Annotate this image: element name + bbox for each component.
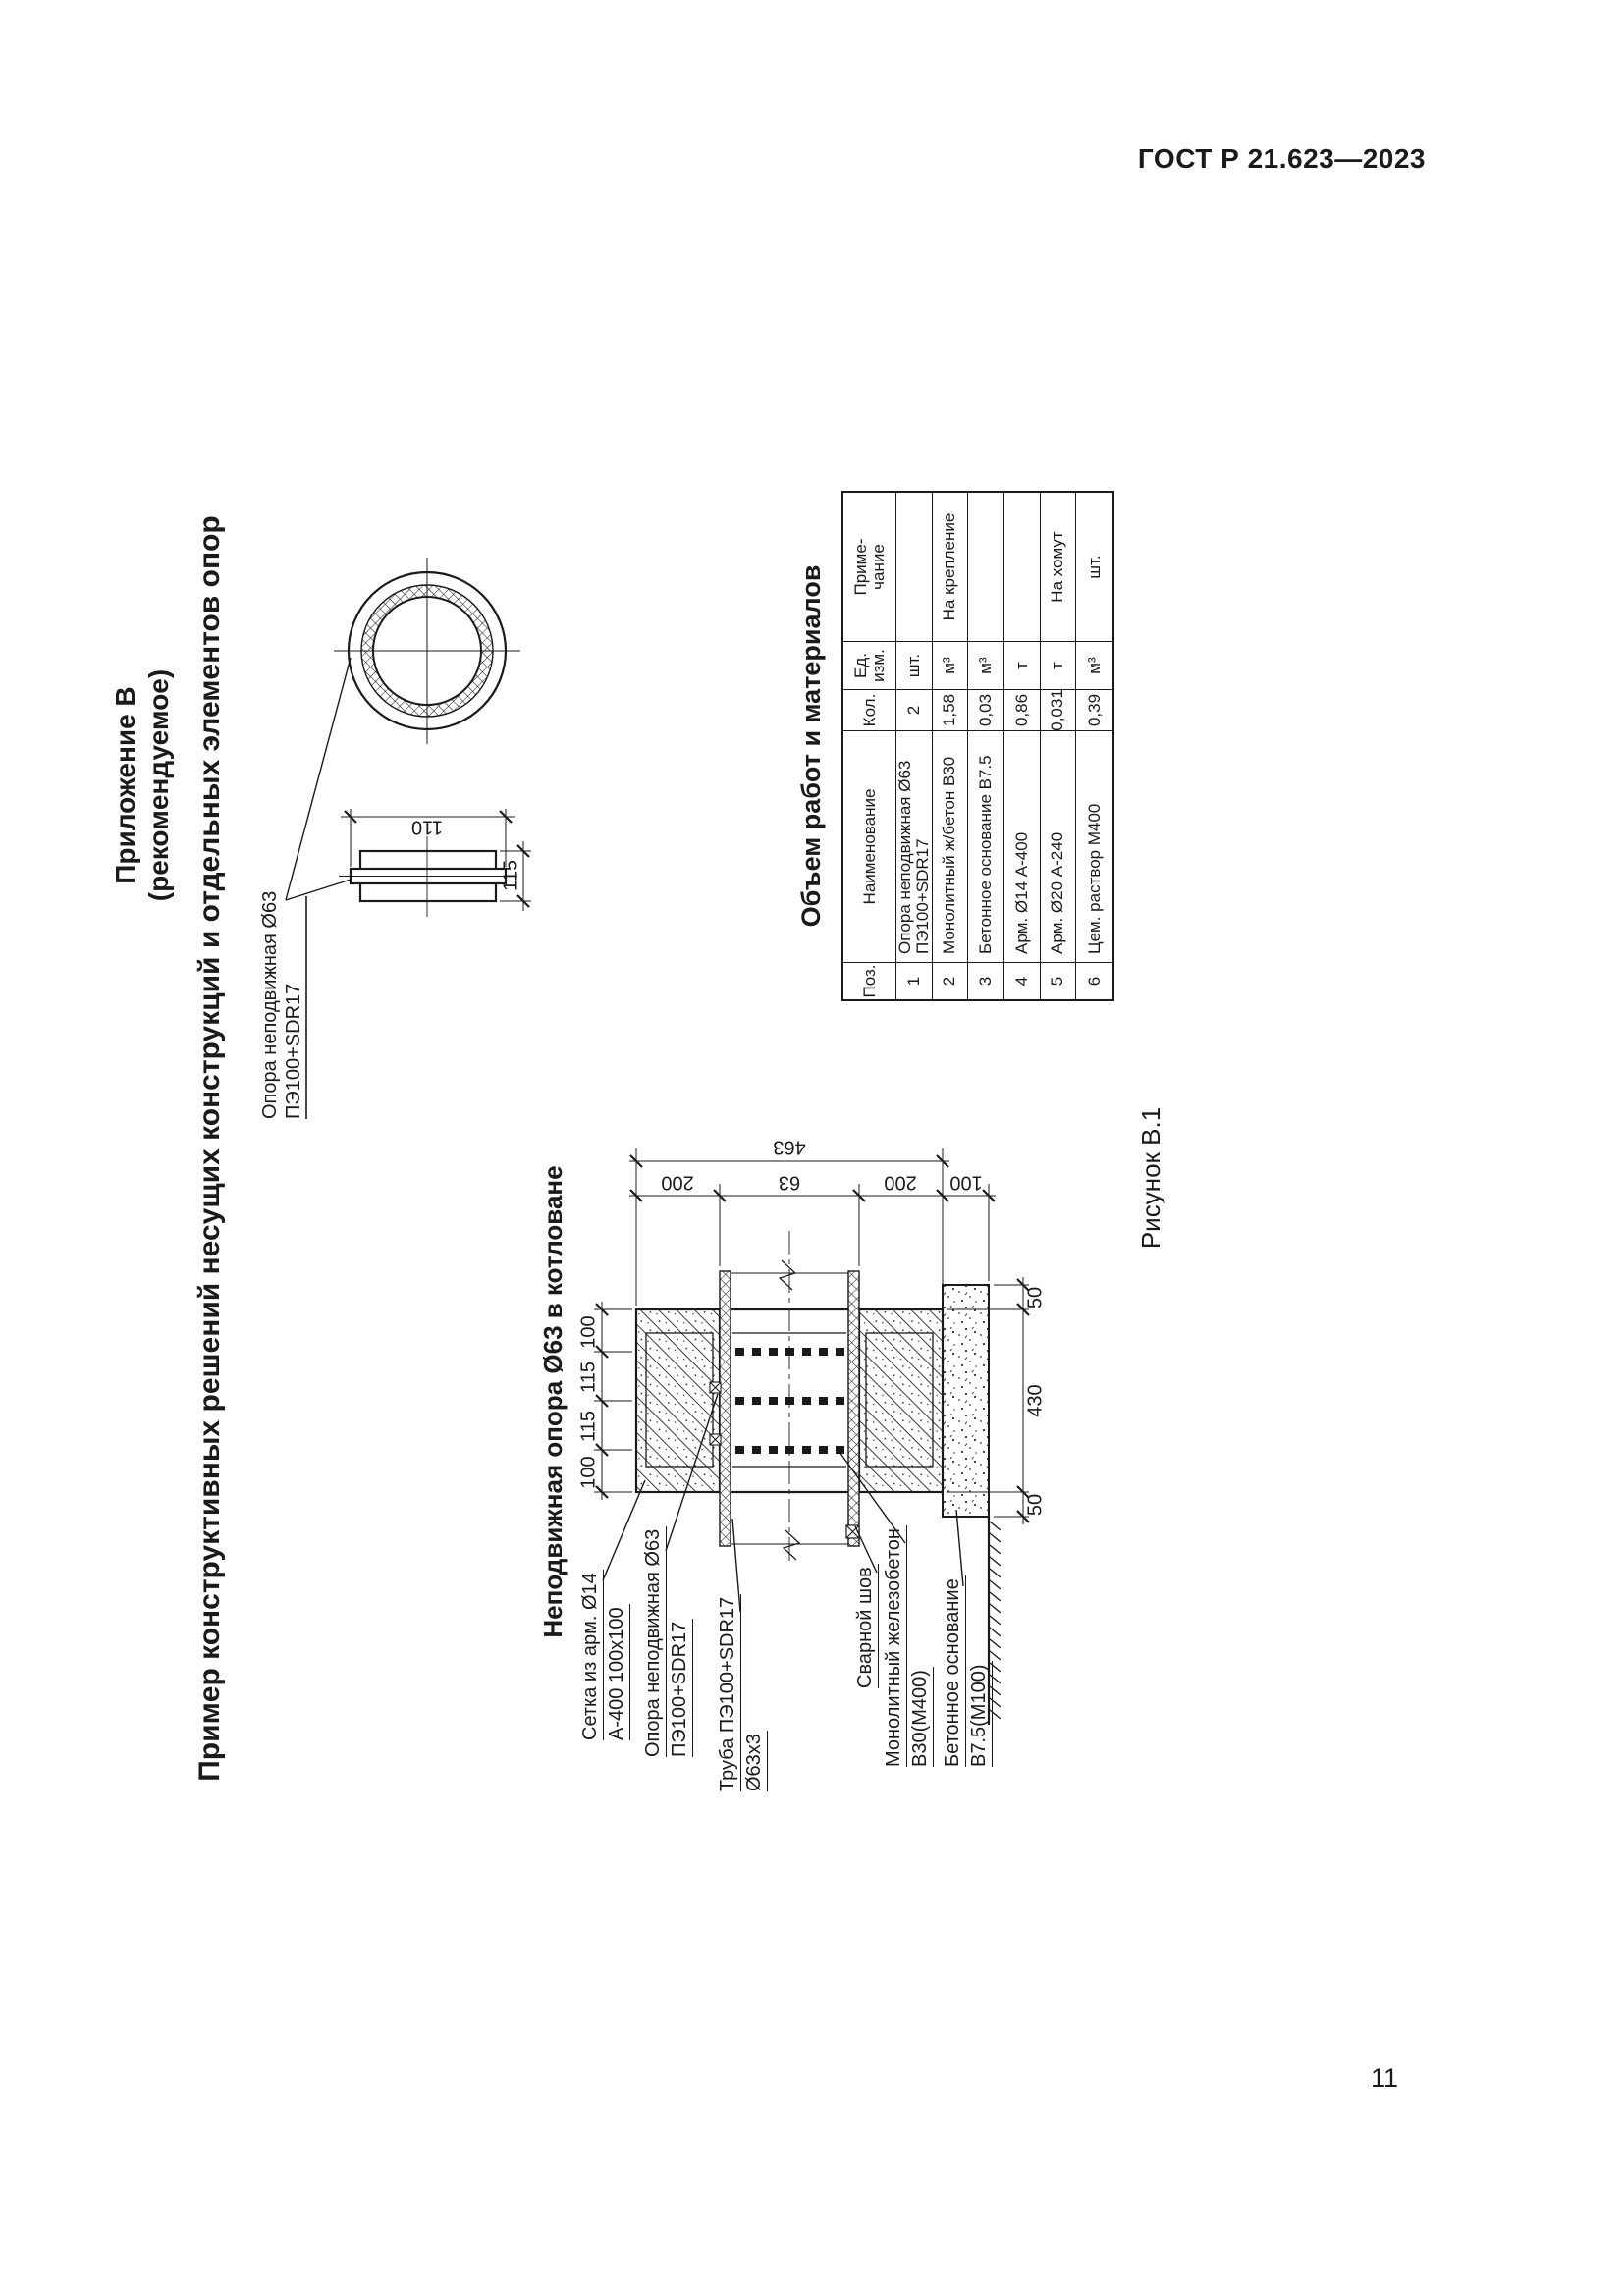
appendix-title: Приложение В <box>109 648 142 923</box>
table-cell: 5 <box>1041 962 1077 999</box>
table-cell: м³ <box>968 641 1004 689</box>
page-number: 11 <box>1371 2063 1398 2094</box>
table-cell: На крепление <box>933 493 969 641</box>
page-title: Пример конструктивных решений несущих ко… <box>193 501 227 1796</box>
col-header-qty: Кол. <box>843 689 896 730</box>
dim-110: 110 <box>411 816 443 838</box>
callout-support-line2: ПЭ100+SDR17 <box>669 1619 693 1757</box>
table-cell: Бетонное основание В7.5 <box>968 730 1004 962</box>
table-cell: 6 <box>1076 962 1112 999</box>
materials-table: Поз. Наименование Кол. Ед. изм. Приме- ч… <box>841 491 1114 1001</box>
callout-weld: Сварной шов <box>854 1564 879 1688</box>
table-cell: Опора неподвижная Ø63 ПЭ100+SDR17 <box>896 730 933 962</box>
table-cell: 2 <box>896 689 933 730</box>
callout-base-line1: Бетонное основание <box>942 1575 966 1767</box>
appendix-heading: Приложение В (рекомендуемое) <box>109 648 176 923</box>
detail-label-line2: ПЭ100+SDR17 <box>283 984 305 1119</box>
table-cell: 0,39 <box>1076 689 1112 730</box>
table-cell: 1 <box>896 962 933 999</box>
drawing-title: Неподвижная опора Ø63 в котловане <box>538 1107 568 1696</box>
dim-w-115b: 115 <box>578 1362 601 1393</box>
table-cell: 0,86 <box>1004 689 1041 730</box>
standard-header: ГОСТ Р 21.623—2023 <box>1031 143 1426 175</box>
table-cell: На хомут <box>1041 493 1077 641</box>
table-cell: 1,58 <box>933 689 969 730</box>
table-cell: т <box>1004 641 1041 689</box>
table-cell: т <box>1041 641 1077 689</box>
figure-caption: Рисунок В.1 <box>1136 1060 1166 1296</box>
col-header-unit: Ед. изм. <box>843 641 896 689</box>
table-cell: м³ <box>933 641 969 689</box>
callout-pipe-line1: Труба ПЭ100+SDR17 <box>717 1594 741 1791</box>
dim-seg-63: 63 <box>779 1171 800 1194</box>
callout-concrete-line2: В30(М400) <box>909 1667 934 1767</box>
col-header-pos: Поз. <box>843 962 896 999</box>
table-cell: 3 <box>968 962 1004 999</box>
dim-total-463: 463 <box>773 1136 805 1158</box>
callout-pipe-line2: Ø63x3 <box>743 1731 768 1791</box>
table-cell: Цем. раствор М400 <box>1076 730 1112 962</box>
table-cell <box>968 493 1004 641</box>
table-cell: 2 <box>933 962 969 999</box>
table-cell: м³ <box>1076 641 1112 689</box>
dim-seg-200a: 200 <box>661 1171 693 1194</box>
dim-w-115a: 115 <box>578 1411 601 1442</box>
table-title: Объем работ и материалов <box>796 491 827 1001</box>
drawing-sheet: Приложение В (рекомендуемое) Пример конс… <box>93 393 1232 2081</box>
table-cell: 0,03 <box>968 689 1004 730</box>
col-header-note: Приме- чание <box>843 493 896 641</box>
table-cell <box>896 493 933 641</box>
callout-mesh-line1: Сетка из арм. Ø14 <box>579 1570 604 1740</box>
dim-115: 115 <box>501 860 523 891</box>
dim-w-100a: 100 <box>578 1456 601 1488</box>
callout-support-line1: Опора неподвижная Ø63 <box>642 1526 667 1757</box>
table-cell: шт. <box>1076 493 1112 641</box>
dim-b-50a: 50 <box>1025 1494 1048 1516</box>
support-pit-section <box>636 1229 989 1561</box>
col-header-name: Наименование <box>843 730 896 962</box>
callout-concrete-line1: Монолитный железобетон <box>883 1525 907 1767</box>
table-cell: 4 <box>1004 962 1041 999</box>
table-cell: 0,031 <box>1041 689 1077 730</box>
callout-base-line2: В7.5(М100) <box>968 1662 993 1768</box>
appendix-subtitle: (рекомендуемое) <box>142 648 176 923</box>
dim-b-50b: 50 <box>1025 1287 1048 1308</box>
table-cell: шт. <box>896 641 933 689</box>
dim-seg-100: 100 <box>949 1171 982 1194</box>
table-cell: Арм. Ø14 А-400 <box>1004 730 1041 962</box>
detail-label-line1: Опора неподвижная Ø63 <box>259 891 282 1119</box>
dim-w-100b: 100 <box>578 1315 601 1348</box>
table-cell: Монолитный ж/бетон В30 <box>933 730 969 962</box>
table-cell: Арм. Ø20 А-240 <box>1041 730 1077 962</box>
dim-b-430: 430 <box>1025 1384 1048 1416</box>
table-cell <box>1004 493 1041 641</box>
callout-mesh-line2: А-400 100x100 <box>606 1604 630 1740</box>
pipe-cross-section <box>286 558 520 1119</box>
dim-seg-200b: 200 <box>884 1171 916 1194</box>
